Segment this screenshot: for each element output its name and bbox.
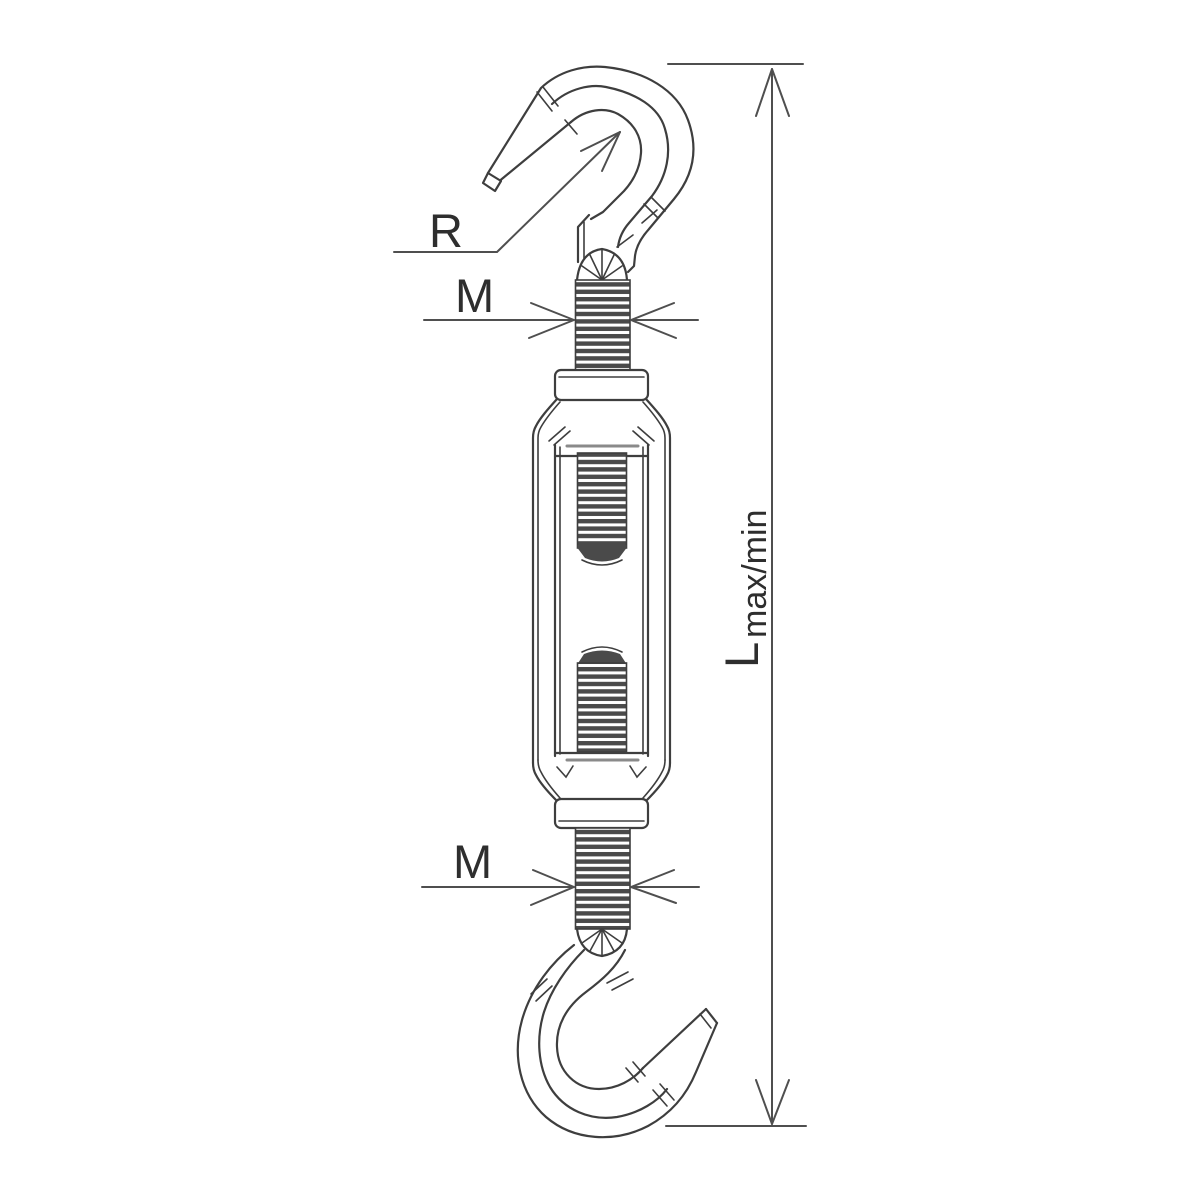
- bottom-collar: [555, 799, 648, 828]
- right-bottom-shoulder: [646, 763, 670, 801]
- top-hook-chisel-tip: [483, 173, 501, 191]
- left-bottom-shoulder: [533, 763, 557, 801]
- right-top-shoulder: [646, 399, 670, 763]
- bottom-hook-neck-fan: [577, 929, 627, 956]
- bottom-threaded-rod: [576, 828, 631, 929]
- top-collar: [555, 370, 648, 400]
- inner-rod-top: [578, 453, 627, 565]
- bottom-hook-inner-contour: [557, 950, 643, 1089]
- inner-rod-bottom: [578, 647, 627, 752]
- length-label-subscript: max/min: [736, 510, 774, 638]
- dimension-thread-top: M: [424, 269, 698, 338]
- bottom-hook-tip-facet: [700, 1014, 711, 1028]
- top-hook-outer-contour: [488, 67, 693, 272]
- drawing-canvas: R M M L max/min: [0, 0, 1200, 1200]
- bottom-hook-chisel-tip: [706, 1009, 717, 1023]
- thread-size-label-top: M: [455, 269, 494, 322]
- bottom-hook-outer-contour: [518, 945, 717, 1137]
- turnbuckle-technical-drawing: R M M L max/min: [0, 0, 1200, 1200]
- left-top-shoulder: [533, 399, 557, 763]
- radius-leader-line: [394, 132, 620, 252]
- dimension-radius: R: [394, 132, 620, 257]
- radius-label: R: [429, 204, 463, 257]
- bottom-hook: [518, 929, 717, 1137]
- dimension-thread-bottom: M: [422, 835, 699, 905]
- dimension-length: L max/min: [666, 64, 806, 1126]
- bottom-hook-tip-inner-edge: [643, 1009, 706, 1068]
- length-label-group: L max/min: [715, 510, 774, 668]
- thread-size-label-bottom: M: [453, 835, 492, 888]
- top-hook: [483, 67, 693, 280]
- turnbuckle-body: [533, 370, 670, 828]
- top-hook-tip-inner-edge: [497, 122, 571, 183]
- top-threaded-rod: [576, 280, 631, 370]
- length-label: L: [715, 642, 768, 668]
